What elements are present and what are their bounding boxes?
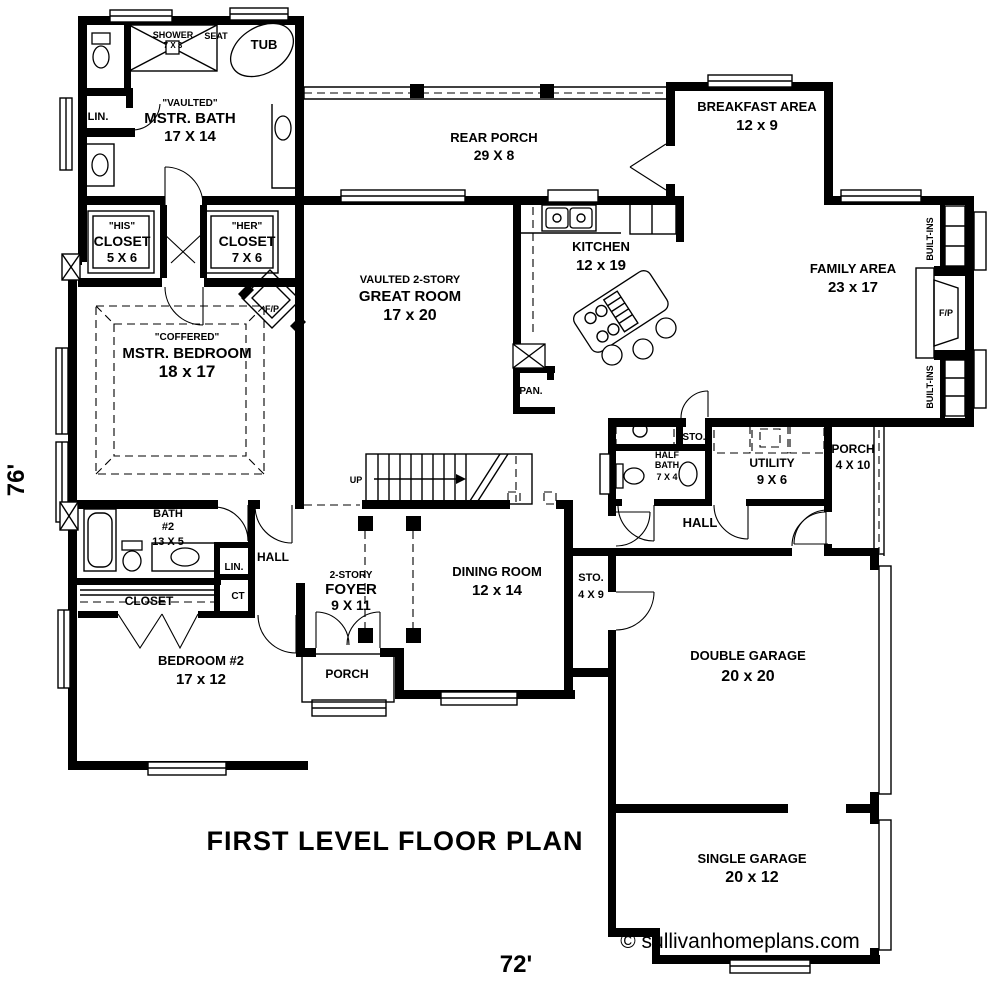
door-swing	[792, 512, 826, 546]
wall-segment	[676, 196, 684, 242]
label-foyer: FOYER	[325, 581, 377, 598]
fixture-line	[945, 206, 965, 266]
label-dining-room: 12 x 14	[472, 582, 523, 599]
label-great-room: VAULTED 2-STORY	[360, 274, 461, 286]
label-copyright: © sullivanhomeplans.com	[620, 930, 860, 953]
wall-segment	[124, 25, 131, 91]
label-her-closet: "HER"	[232, 221, 263, 232]
door-swing	[630, 144, 666, 167]
door-swing	[616, 512, 650, 546]
label-plan-title: FIRST LEVEL FLOOR PLAN	[206, 826, 583, 856]
wall-segment	[78, 278, 162, 287]
wall-segment	[940, 204, 945, 268]
label-breakfast-area: 12 x 9	[736, 117, 778, 134]
wall-segment	[608, 508, 616, 516]
label-mstr-bedroom: MSTR. BEDROOM	[122, 345, 251, 362]
wall-segment	[295, 16, 304, 509]
fixture	[546, 208, 568, 228]
floor-plan-page: "VAULTED"MSTR. BATH17 X 14SHOWER7 X 3SEA…	[0, 0, 1000, 1000]
label-utility: UTILITY	[749, 456, 794, 470]
label-his-closet: CLOSET	[94, 233, 151, 249]
label-fp-1: F/P	[265, 304, 279, 314]
label-seat: SEAT	[204, 31, 228, 41]
label-mstr-bath: 17 X 14	[164, 128, 216, 145]
fixture	[123, 551, 141, 571]
wall-segment	[547, 366, 554, 380]
sink-icon	[171, 548, 199, 566]
wall-segment	[78, 611, 118, 618]
wall-segment	[616, 804, 788, 813]
door-swing	[165, 287, 203, 325]
label-great-room: 17 x 20	[383, 307, 436, 324]
label-tub: TUB	[251, 37, 278, 52]
refrigerator-icon	[630, 204, 676, 234]
door-swing	[714, 505, 748, 539]
label-mstr-bedroom: "COFFERED"	[155, 332, 220, 343]
label-up: UP	[350, 475, 363, 485]
label-lin-1: LIN.	[88, 111, 109, 123]
door-swing	[316, 612, 349, 645]
label-double-garage: DOUBLE GARAGE	[690, 648, 806, 663]
fixture-line	[916, 268, 934, 358]
label-dining-room: DINING ROOM	[452, 564, 542, 579]
label-family-area: 23 x 17	[828, 279, 878, 296]
label-lin-2: LIN.	[225, 562, 244, 573]
window	[600, 454, 610, 494]
label-width-dim: 72'	[500, 951, 532, 978]
dashed-line	[96, 306, 114, 324]
sink-icon	[92, 154, 108, 176]
kitchen-sink-icon	[542, 205, 596, 231]
wall-segment	[608, 499, 622, 506]
wall-segment	[940, 358, 945, 420]
label-mstr-bath: "VAULTED"	[162, 98, 217, 109]
label-pan: PAN.	[519, 386, 542, 397]
label-half-bath: 7 X 4	[656, 472, 677, 482]
double-garage-door	[879, 566, 891, 794]
door-swing	[630, 167, 666, 190]
wall-segment	[68, 500, 218, 509]
wall-segment	[870, 948, 879, 964]
wall-segment	[248, 500, 260, 509]
fixture	[570, 208, 592, 228]
label-shower: SHOWER	[153, 30, 194, 40]
wall-segment	[824, 82, 833, 205]
fixture-line	[945, 360, 965, 416]
toilet-icon-bath2	[122, 541, 142, 571]
wall-segment	[296, 648, 316, 657]
label-porch-right: 4 X 10	[836, 458, 871, 472]
label-porch-right: PORCH	[831, 442, 874, 456]
label-great-room: GREAT ROOM	[359, 288, 461, 305]
label-half-bath: BATH	[655, 460, 679, 470]
fixture	[571, 268, 672, 356]
wall-segment	[78, 128, 135, 137]
label-height-dim: 76'	[3, 464, 30, 496]
label-sto-2: STO.	[578, 572, 603, 584]
wall-segment	[746, 499, 832, 506]
wall-segment	[198, 611, 255, 618]
dashed-line	[760, 429, 780, 447]
sink-icon	[679, 462, 697, 486]
door-swing	[214, 507, 248, 541]
stairs	[366, 454, 532, 504]
label-single-garage: 20 x 12	[725, 869, 778, 886]
washer-icon	[714, 423, 750, 453]
label-sto-1: STO.	[682, 432, 705, 443]
wall-segment	[78, 16, 87, 262]
label-kitchen: KITCHEN	[572, 239, 630, 254]
fixture	[92, 33, 110, 44]
tub-icon-bath2	[84, 509, 116, 571]
wall-segment	[705, 418, 712, 506]
label-single-garage: SINGLE GARAGE	[697, 851, 806, 866]
dashed-line	[246, 306, 264, 324]
label-rear-porch: 29 X 8	[474, 147, 515, 163]
wall-segment	[824, 418, 832, 512]
label-bath-2: #2	[162, 521, 174, 533]
wall-segment	[934, 266, 965, 276]
label-his-closet: 5 X 6	[107, 250, 137, 265]
wall-segment	[824, 548, 878, 556]
column	[406, 516, 421, 531]
label-bedroom-2: BEDROOM #2	[158, 653, 244, 668]
label-fp-2: F/P	[939, 308, 953, 318]
label-ct: CT	[231, 591, 244, 602]
door-swing	[171, 233, 203, 263]
label-foyer: 9 X 11	[331, 597, 371, 613]
wall-segment	[78, 196, 165, 205]
label-shower: 7 X 3	[164, 41, 183, 50]
door-swing	[165, 167, 203, 205]
wall-segment	[296, 583, 305, 657]
chase	[513, 344, 545, 368]
label-hall-right: HALL	[683, 515, 718, 530]
dashed-line	[96, 456, 114, 474]
column	[358, 516, 373, 531]
fixture	[93, 46, 109, 68]
fixture-line	[88, 513, 112, 567]
dryer-icon	[752, 423, 788, 453]
fixture-line	[630, 204, 676, 234]
door-swing	[258, 615, 296, 653]
label-rear-porch: REAR PORCH	[450, 130, 537, 145]
stairs-arrow	[456, 474, 466, 484]
door-swing	[616, 592, 654, 630]
stool-icon	[633, 339, 653, 359]
single-garage-door	[879, 820, 891, 950]
label-kitchen: 12 x 19	[576, 257, 626, 274]
window	[974, 212, 986, 270]
label-sto-2: 4 X 9	[578, 589, 604, 601]
window	[548, 190, 598, 202]
wall-segment	[572, 548, 792, 556]
stool-icon	[656, 318, 676, 338]
toilet-icon-halfbath	[616, 464, 644, 488]
porch-post	[410, 84, 424, 98]
dashed-line	[544, 492, 556, 504]
label-hall-left: HALL	[257, 550, 289, 564]
freezer-icon	[790, 423, 824, 453]
wall-segment	[608, 630, 616, 935]
stool-icon	[602, 345, 622, 365]
label-double-garage: 20 x 20	[721, 668, 774, 685]
label-porch-front: PORCH	[325, 667, 368, 681]
label-utility: 9 X 6	[757, 472, 787, 487]
fixture-line	[476, 454, 508, 504]
fixture	[624, 468, 644, 484]
label-half-bath: HALF	[655, 450, 679, 460]
walls-layer	[68, 16, 974, 964]
label-breakfast-area: BREAKFAST AREA	[697, 99, 817, 114]
wall-segment	[654, 499, 712, 506]
fixture-line	[468, 454, 500, 504]
label-bath-2: 13 X 5	[152, 536, 184, 548]
wall-segment	[513, 407, 555, 414]
fixture	[122, 541, 142, 550]
floor-plan-drawing: "VAULTED"MSTR. BATH17 X 14SHOWER7 X 3SEA…	[0, 0, 1000, 1000]
label-bedroom-2: 17 x 12	[176, 671, 226, 688]
label-built-ins-bottom: BUILT-INS	[925, 365, 935, 408]
window	[974, 350, 986, 408]
wall-segment	[78, 88, 133, 96]
door-swing	[681, 391, 708, 418]
wall-segment	[556, 500, 566, 509]
column	[406, 628, 421, 643]
wall-segment	[965, 196, 974, 427]
porch-post	[540, 84, 554, 98]
wall-segment	[126, 96, 133, 108]
wall-segment	[846, 804, 872, 813]
column	[358, 628, 373, 643]
dashed-line	[114, 324, 246, 456]
label-built-ins-top: BUILT-INS	[925, 217, 935, 260]
wall-segment	[608, 556, 616, 592]
door-swing	[118, 614, 162, 648]
wall-segment	[248, 509, 255, 611]
toilet-icon-master	[92, 33, 110, 68]
sink-icon	[275, 116, 291, 140]
wall-segment	[202, 196, 304, 205]
label-her-closet: 7 X 6	[232, 250, 262, 265]
label-bath-2: BATH	[153, 508, 183, 520]
wall-segment	[513, 196, 521, 346]
label-his-closet: "HIS"	[109, 221, 135, 232]
island-cooktop-icon	[571, 268, 672, 356]
dashed-line	[246, 456, 264, 474]
wall-segment	[934, 350, 965, 360]
door-swing	[163, 233, 195, 263]
label-her-closet: CLOSET	[219, 233, 276, 249]
label-family-area: FAMILY AREA	[810, 261, 897, 276]
wall-segment	[68, 578, 221, 585]
label-foyer: 2-STORY	[330, 570, 373, 581]
door-swing	[162, 614, 198, 648]
wall-segment	[160, 205, 167, 278]
fixture	[616, 464, 623, 488]
label-mstr-bedroom: 18 x 17	[159, 362, 216, 381]
door-swing	[255, 505, 292, 543]
label-closet-2: CLOSET	[125, 594, 174, 608]
label-mstr-bath: MSTR. BATH	[144, 110, 235, 127]
wall-segment	[666, 184, 675, 205]
